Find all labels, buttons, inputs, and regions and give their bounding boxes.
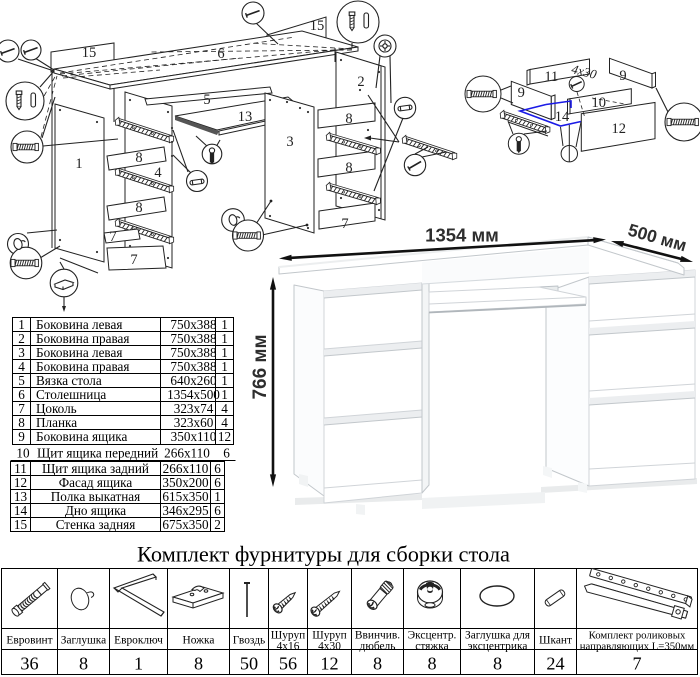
svg-text:эксцентрика: эксцентрика xyxy=(468,640,528,652)
svg-text:766 мм: 766 мм xyxy=(250,334,271,399)
svg-text:7: 7 xyxy=(130,252,137,268)
svg-text:750x388: 750x388 xyxy=(170,359,217,374)
svg-text:6: 6 xyxy=(214,461,221,476)
svg-text:8: 8 xyxy=(18,415,25,430)
svg-text:4: 4 xyxy=(221,415,228,430)
svg-text:Фасад ящика: Фасад ящика xyxy=(59,475,133,490)
svg-text:4x30: 4x30 xyxy=(318,640,341,652)
svg-text:11: 11 xyxy=(14,461,27,476)
svg-text:8: 8 xyxy=(79,654,88,674)
svg-text:750x388: 750x388 xyxy=(170,317,217,332)
svg-text:Боковина правая: Боковина правая xyxy=(36,359,129,374)
svg-text:6: 6 xyxy=(18,387,25,402)
svg-text:8: 8 xyxy=(135,200,142,216)
svg-text:Щит ящика задний: Щит ящика задний xyxy=(42,461,149,476)
svg-text:Гвоздь: Гвоздь xyxy=(233,635,265,647)
svg-text:Планка: Планка xyxy=(36,415,77,430)
svg-text:56: 56 xyxy=(279,654,297,674)
svg-text:12: 12 xyxy=(320,654,338,674)
svg-text:1: 1 xyxy=(221,373,228,388)
svg-text:1354x500: 1354x500 xyxy=(167,387,220,402)
svg-text:стяжка: стяжка xyxy=(415,640,448,652)
svg-text:1: 1 xyxy=(134,654,143,674)
svg-text:50: 50 xyxy=(240,654,258,674)
svg-text:4: 4 xyxy=(18,359,25,374)
svg-text:7: 7 xyxy=(18,401,25,416)
svg-text:1: 1 xyxy=(221,359,228,374)
svg-text:13: 13 xyxy=(238,109,253,125)
svg-text:7: 7 xyxy=(632,654,641,674)
svg-text:Шкант: Шкант xyxy=(539,635,572,647)
svg-text:12: 12 xyxy=(14,475,27,490)
svg-text:350x200: 350x200 xyxy=(162,475,209,490)
svg-text:Ножка: Ножка xyxy=(183,635,215,647)
svg-text:1: 1 xyxy=(214,489,221,504)
svg-text:15: 15 xyxy=(82,45,97,61)
svg-text:8: 8 xyxy=(427,654,436,674)
svg-text:13: 13 xyxy=(14,489,28,504)
svg-text:266x110: 266x110 xyxy=(164,446,210,461)
svg-text:1: 1 xyxy=(221,331,228,346)
svg-text:1: 1 xyxy=(221,345,228,360)
svg-text:11: 11 xyxy=(544,69,558,85)
svg-text:640x260: 640x260 xyxy=(170,373,217,388)
svg-text:Стенка задняя: Стенка задняя xyxy=(56,517,136,532)
svg-text:Боковина правая: Боковина правая xyxy=(36,331,129,346)
svg-text:Заглушка: Заглушка xyxy=(61,635,106,647)
svg-text:Столешница: Столешница xyxy=(36,387,106,402)
svg-text:Вязка стола: Вязка стола xyxy=(36,373,102,388)
svg-text:12: 12 xyxy=(218,429,231,444)
svg-text:4: 4 xyxy=(221,401,228,416)
svg-text:15: 15 xyxy=(14,517,28,532)
svg-text:675x350: 675x350 xyxy=(162,517,209,532)
svg-text:8: 8 xyxy=(135,150,142,166)
svg-text:5: 5 xyxy=(18,373,25,388)
svg-text:9: 9 xyxy=(619,68,626,84)
svg-text:346x295: 346x295 xyxy=(162,503,209,518)
svg-text:Евровинт: Евровинт xyxy=(6,635,52,647)
svg-text:8: 8 xyxy=(345,111,352,127)
svg-text:8: 8 xyxy=(345,160,352,176)
svg-text:500 мм: 500 мм xyxy=(626,220,689,256)
svg-text:8: 8 xyxy=(493,654,502,674)
svg-text:6: 6 xyxy=(214,475,221,490)
svg-text:Боковина левая: Боковина левая xyxy=(36,345,122,360)
svg-text:10: 10 xyxy=(592,95,607,111)
svg-text:615x350: 615x350 xyxy=(162,489,209,504)
svg-text:350x110: 350x110 xyxy=(171,429,217,444)
svg-text:дюбель: дюбель xyxy=(360,640,396,652)
svg-text:6: 6 xyxy=(214,503,221,518)
svg-text:3: 3 xyxy=(18,345,25,360)
svg-text:1354 мм: 1354 мм xyxy=(425,225,499,246)
svg-text:1: 1 xyxy=(75,156,82,172)
svg-text:2: 2 xyxy=(18,331,25,346)
svg-text:2: 2 xyxy=(214,517,221,532)
svg-text:6: 6 xyxy=(217,46,224,62)
svg-text:7: 7 xyxy=(109,229,116,245)
svg-text:6: 6 xyxy=(223,446,230,461)
svg-text:9: 9 xyxy=(18,429,25,444)
svg-text:Дно ящика: Дно ящика xyxy=(65,503,126,518)
svg-text:14: 14 xyxy=(14,503,28,518)
svg-text:12: 12 xyxy=(612,121,627,137)
svg-text:Полка выкатная: Полка выкатная xyxy=(51,489,140,504)
svg-text:Боковина левая: Боковина левая xyxy=(36,317,122,332)
svg-text:1: 1 xyxy=(221,317,228,332)
svg-text:15: 15 xyxy=(310,18,325,34)
svg-text:9: 9 xyxy=(518,85,525,101)
svg-text:24: 24 xyxy=(546,654,564,674)
svg-text:36: 36 xyxy=(20,654,38,674)
svg-text:266x110: 266x110 xyxy=(163,461,209,476)
svg-text:750x388: 750x388 xyxy=(170,345,217,360)
svg-text:Комплект фурнитуры для сборки: Комплект фурнитуры для сборки стола xyxy=(137,542,510,567)
svg-text:1: 1 xyxy=(18,317,25,332)
svg-text:323x74: 323x74 xyxy=(174,401,214,416)
svg-text:750x388: 750x388 xyxy=(170,331,217,346)
svg-text:Боковина ящика: Боковина ящика xyxy=(36,429,127,444)
svg-text:Щит ящика передний: Щит ящика передний xyxy=(37,446,158,461)
svg-text:3: 3 xyxy=(286,134,293,150)
svg-text:14: 14 xyxy=(555,109,570,125)
svg-text:Евроключ: Евроключ xyxy=(114,635,163,647)
svg-text:8: 8 xyxy=(194,654,203,674)
svg-text:1: 1 xyxy=(221,387,228,402)
svg-text:Цоколь: Цоколь xyxy=(36,401,77,416)
svg-text:2: 2 xyxy=(357,74,364,90)
svg-text:8: 8 xyxy=(373,654,382,674)
svg-text:5: 5 xyxy=(203,92,210,108)
svg-text:323x60: 323x60 xyxy=(174,415,214,430)
svg-text:10: 10 xyxy=(16,446,30,461)
svg-text:4x16: 4x16 xyxy=(277,640,300,652)
svg-text:направляющих L=350мм: направляющих L=350мм xyxy=(580,640,695,652)
svg-text:7: 7 xyxy=(341,216,348,232)
svg-text:4: 4 xyxy=(154,165,162,181)
